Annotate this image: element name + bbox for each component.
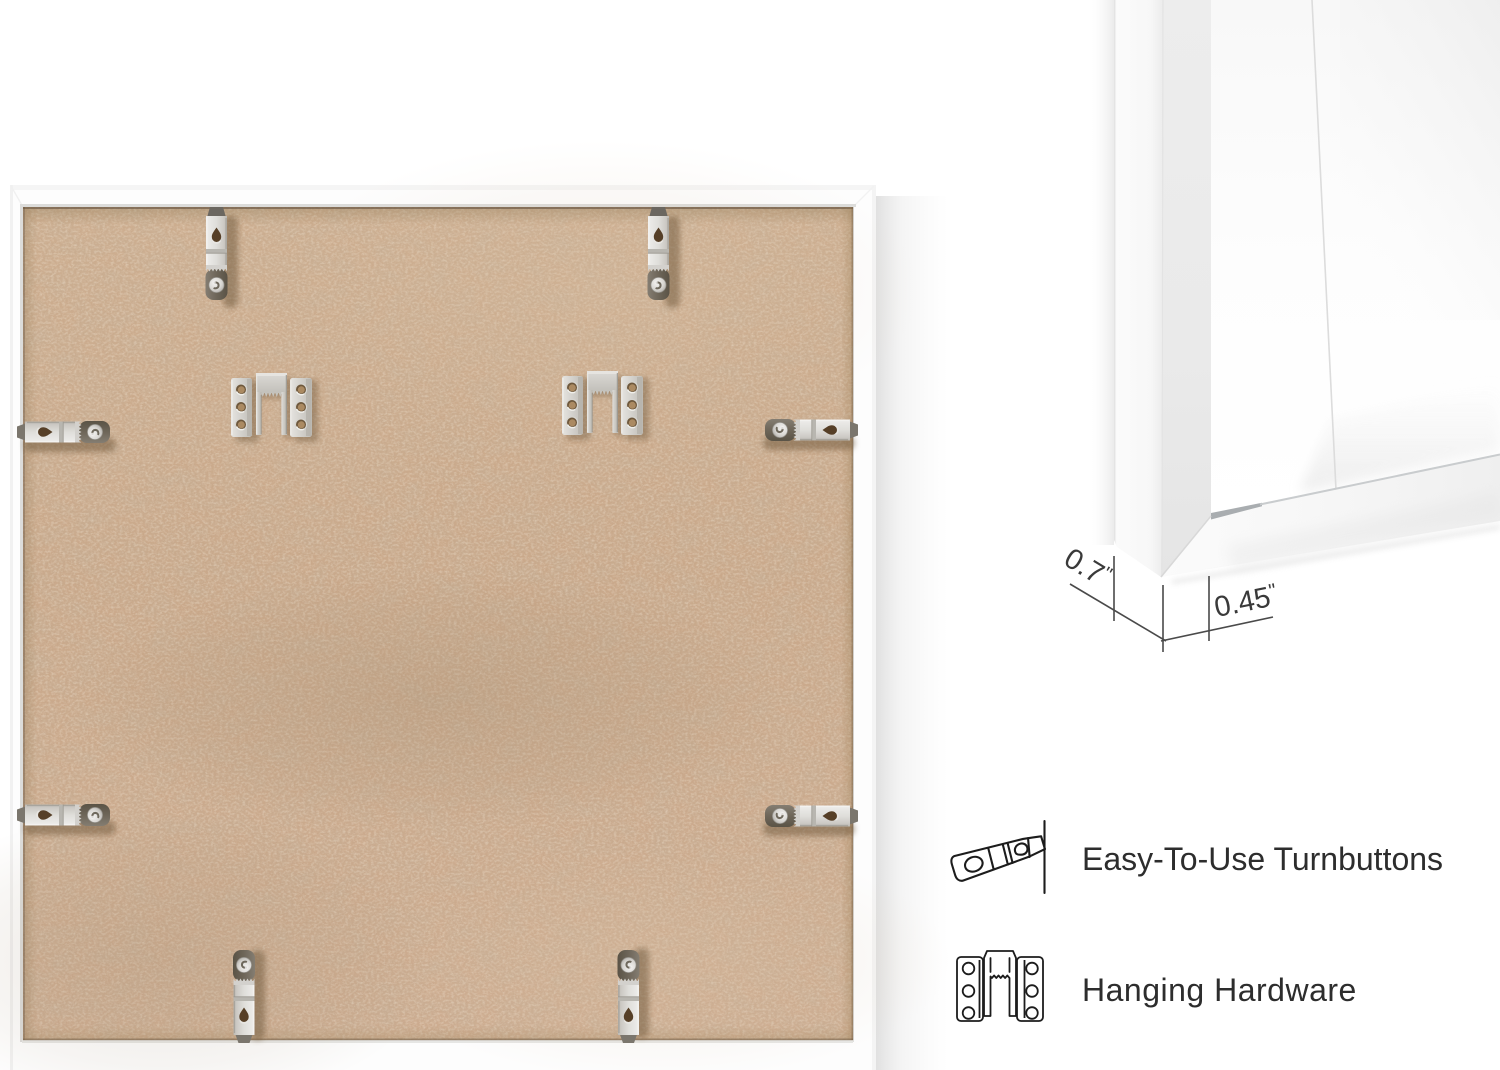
svg-text:Easy-To-Use Turnbuttons: Easy-To-Use Turnbuttons (1082, 841, 1443, 877)
svg-text:Hanging Hardware: Hanging Hardware (1082, 972, 1357, 1008)
